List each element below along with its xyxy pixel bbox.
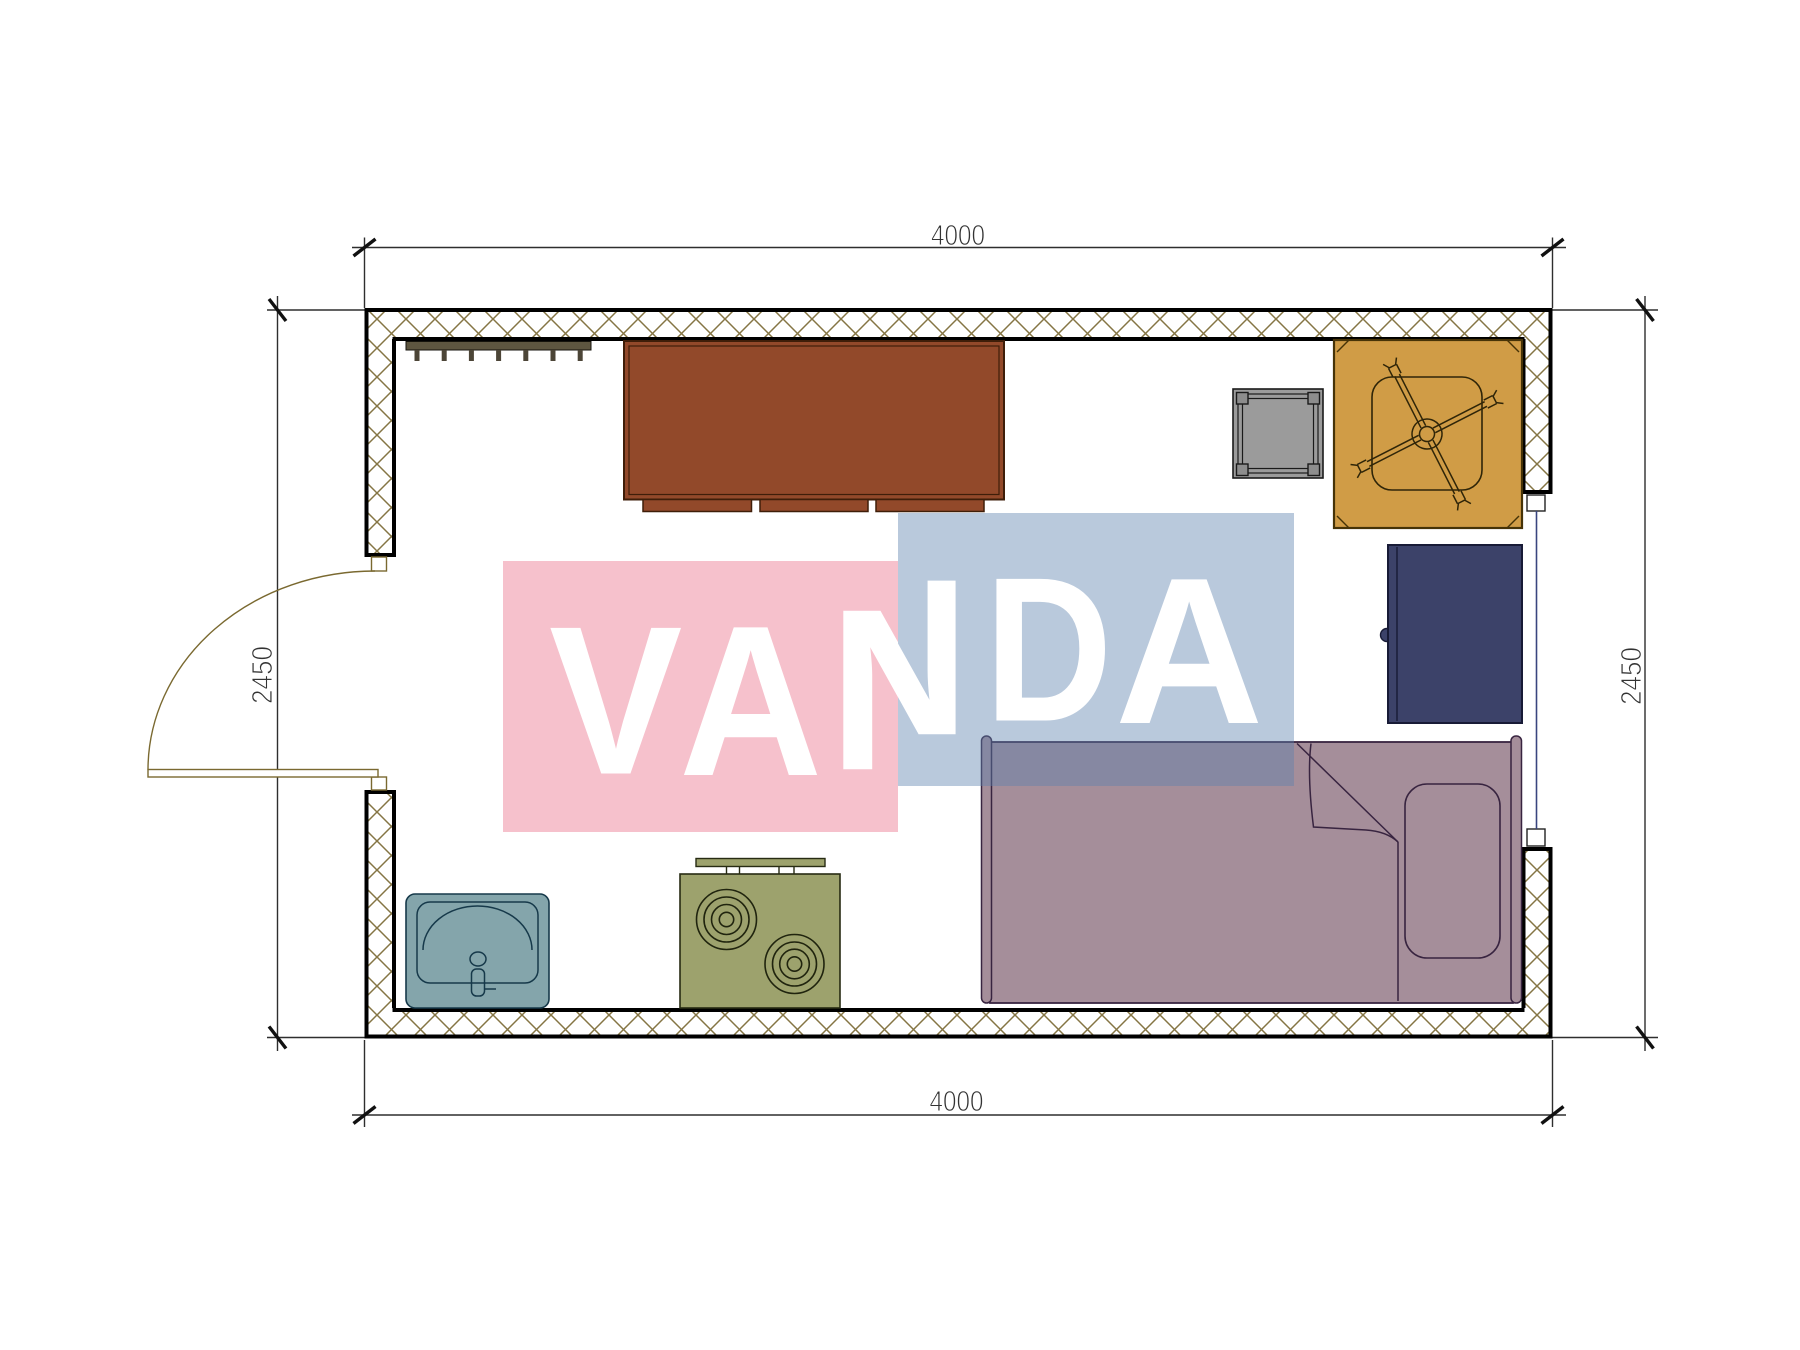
svg-text:A: A	[679, 581, 822, 821]
svg-text:4000: 4000	[930, 1086, 984, 1118]
svg-text:D: D	[985, 534, 1113, 765]
svg-text:2450: 2450	[247, 646, 279, 704]
svg-text:2450: 2450	[1616, 647, 1648, 705]
svg-text:A: A	[1115, 534, 1264, 768]
svg-text:V: V	[549, 582, 682, 818]
svg-text:4000: 4000	[931, 220, 985, 252]
